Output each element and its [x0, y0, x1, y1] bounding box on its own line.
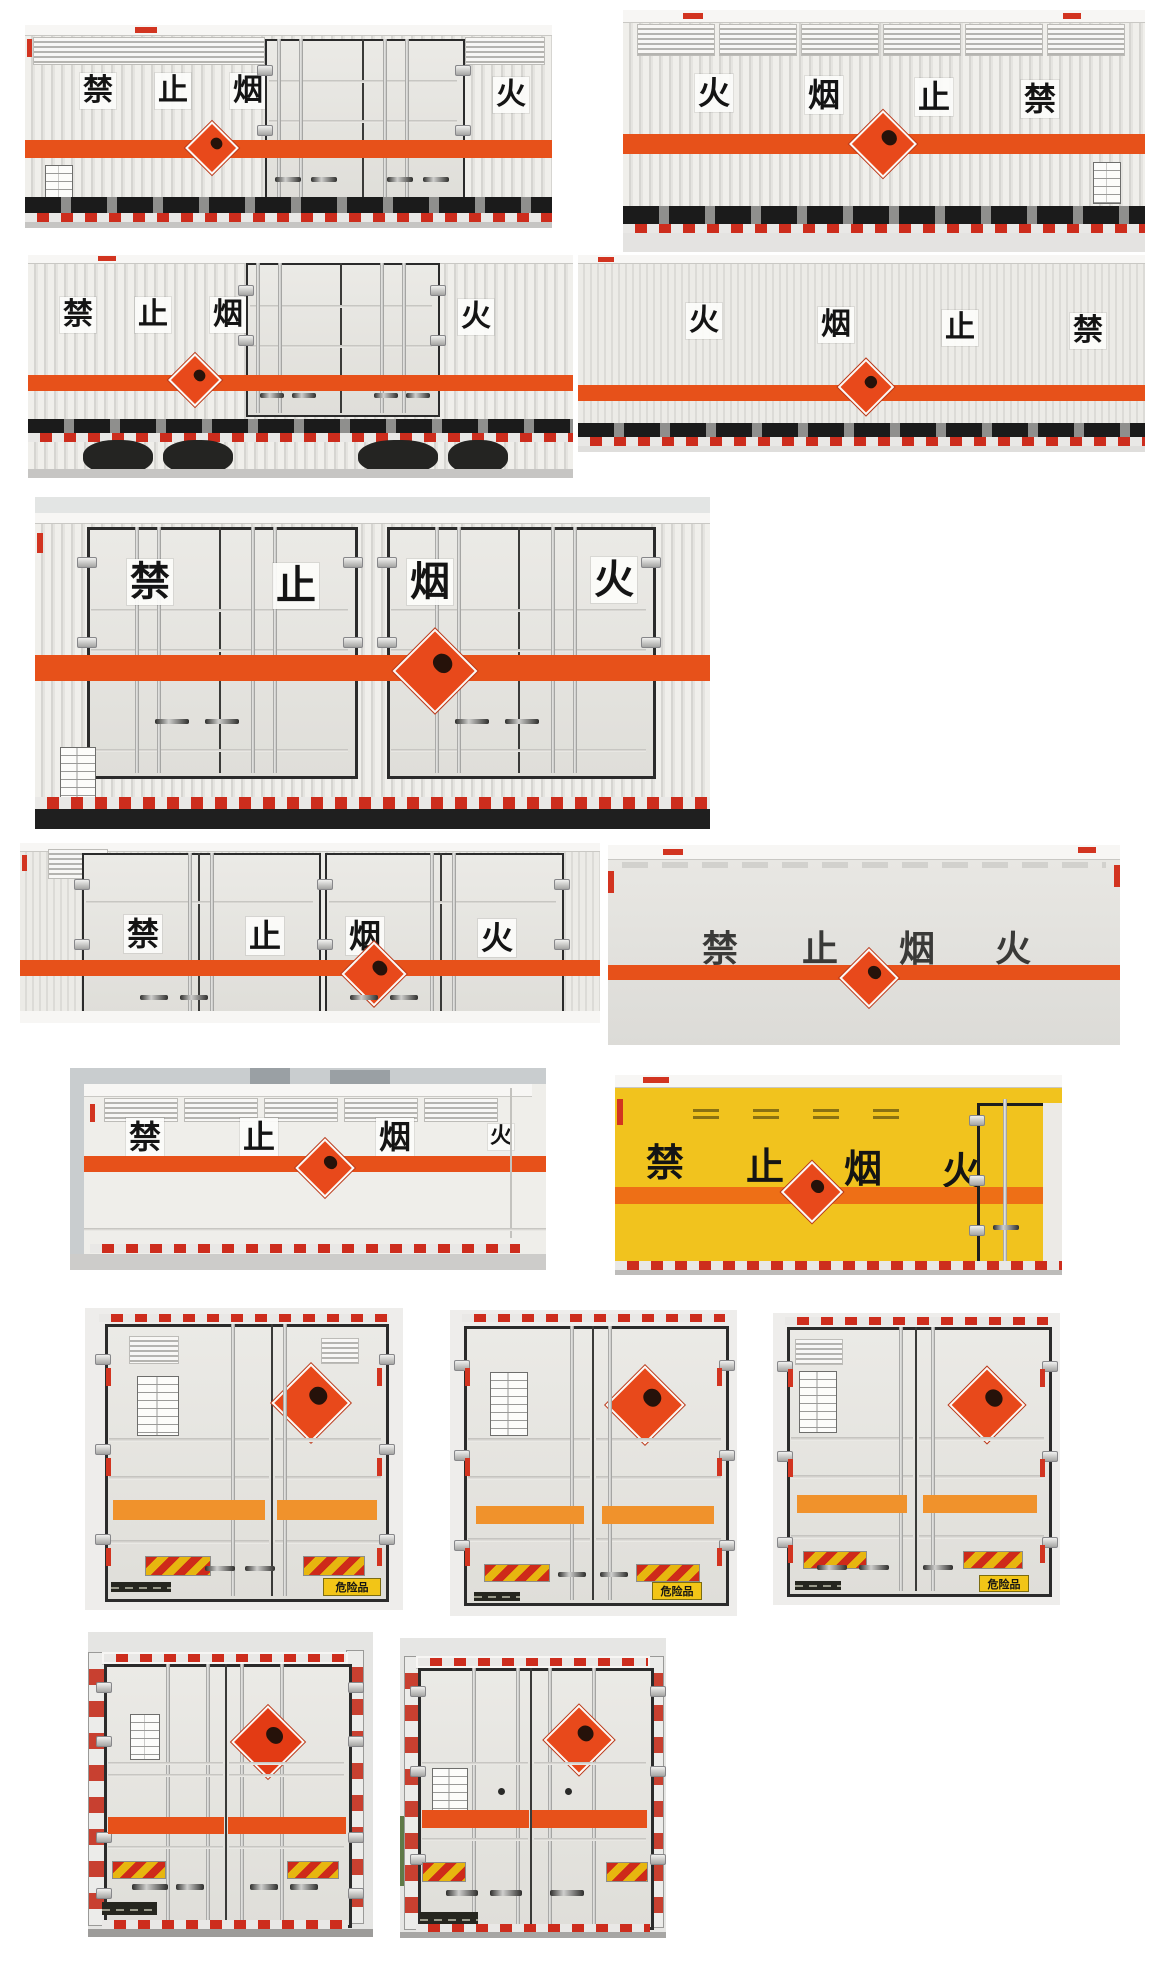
door-rib	[919, 1437, 1044, 1441]
no-fire-char: 禁	[643, 1141, 687, 1185]
red-marker	[27, 39, 32, 57]
door-latch	[423, 177, 449, 182]
door-rib	[534, 1838, 646, 1841]
door-lock-rod	[383, 39, 387, 199]
vent-louver	[1047, 24, 1125, 56]
hinge-tab	[95, 1534, 111, 1545]
door-rib	[534, 1762, 646, 1765]
flame-icon	[865, 963, 883, 981]
no-fire-char: 止	[942, 310, 978, 346]
door-latch	[250, 1884, 278, 1890]
door-split	[225, 1664, 227, 1922]
door-latch	[490, 1890, 522, 1896]
door-rib	[919, 1535, 1044, 1539]
photo-box-van-side-5: 禁 止 烟 火	[35, 497, 710, 829]
photo-box-van-side-2: 火 烟 止 禁	[623, 10, 1145, 252]
red-reflector	[465, 1368, 470, 1386]
reflective-strip	[25, 213, 552, 222]
dangerous-goods-text: 危险品	[661, 1583, 694, 1599]
red-marker	[37, 533, 43, 553]
door-lock-rod	[472, 1668, 476, 1924]
spec-label-plate	[130, 1714, 160, 1760]
door-latch	[558, 1572, 586, 1577]
door-lock-rod	[931, 1327, 935, 1591]
no-fire-char: 烟	[407, 559, 453, 605]
hinge-tab	[348, 1832, 364, 1843]
warning-stripe	[422, 1810, 529, 1828]
spec-label-plate	[1093, 162, 1121, 204]
no-fire-char: 禁	[1070, 313, 1106, 349]
no-fire-char: 止	[743, 1145, 787, 1189]
door-latch	[387, 177, 413, 182]
vent-louver	[33, 37, 265, 65]
photo-box-van-rear-13	[88, 1632, 373, 1937]
hinge-tab	[348, 1682, 364, 1693]
red-reflector	[717, 1458, 722, 1476]
red-reflector	[788, 1369, 793, 1387]
hinge-tab	[96, 1888, 112, 1899]
rear-door-frame	[977, 1103, 1047, 1269]
no-fire-char: 禁	[60, 297, 96, 333]
roof-rail	[35, 513, 710, 524]
spec-label-plate	[60, 747, 96, 801]
door-split	[198, 853, 200, 1011]
door-latch	[390, 995, 418, 1000]
ground	[623, 233, 1145, 252]
warning-stripe	[25, 140, 552, 158]
vent-louver	[321, 1338, 359, 1364]
vent-louver	[795, 1339, 843, 1365]
vent-slit	[813, 1109, 839, 1112]
no-fire-char: 火	[695, 74, 733, 112]
door-lock-rod	[570, 1326, 574, 1600]
box-side-post	[1043, 1103, 1062, 1263]
company-info-plate	[795, 1581, 841, 1590]
door-lock-rod	[283, 1324, 287, 1596]
door-rib	[391, 749, 646, 752]
door-rib	[791, 1535, 913, 1539]
door-lock-rod	[405, 39, 409, 199]
door-latch	[455, 719, 489, 724]
vent-louver	[883, 24, 961, 56]
hinge-tab	[641, 637, 661, 648]
flame-icon	[321, 1153, 339, 1171]
no-fire-char: 烟	[818, 307, 854, 343]
warning-stripe	[20, 960, 600, 976]
ground	[28, 469, 573, 478]
flame-icon	[192, 367, 208, 383]
door-lock-rod	[899, 1327, 903, 1591]
no-fire-char: 禁	[700, 930, 740, 970]
door-latch	[205, 1566, 235, 1571]
red-marker	[608, 871, 614, 893]
door-lock-rod	[1003, 1099, 1007, 1267]
red-reflector	[465, 1548, 470, 1566]
no-fire-char: 禁	[80, 73, 116, 109]
no-fire-char: 禁	[127, 559, 173, 605]
photo-box-van-side-6: 禁 止 烟 火	[20, 843, 600, 1023]
door-split	[440, 853, 442, 1011]
door-split	[530, 1668, 532, 1924]
hinge-tab	[96, 1736, 112, 1747]
no-fire-char: 禁	[124, 915, 162, 953]
door-rib	[275, 1540, 381, 1544]
door-latch	[205, 719, 239, 724]
door-latch	[245, 1566, 275, 1571]
top-marker-strip	[104, 1654, 346, 1662]
top-marker-strip	[785, 1317, 1048, 1325]
photo-box-van-rear-14	[400, 1638, 666, 1938]
hinge-tab	[410, 1686, 426, 1697]
door-split	[362, 39, 364, 199]
top-marker-strip	[99, 1314, 389, 1322]
warning-stripe	[476, 1506, 584, 1524]
hinge-tab	[96, 1682, 112, 1693]
hinge-tab	[95, 1354, 111, 1365]
photo-yellow-box-van-side-9: 禁 止 烟 火	[615, 1075, 1062, 1275]
hinge-tab	[317, 879, 333, 890]
photo-box-van-side-7: 禁 止 烟 火	[608, 845, 1120, 1045]
ground	[578, 446, 1145, 452]
red-marker	[663, 849, 683, 855]
red-marker	[683, 13, 703, 19]
door-rib	[269, 80, 457, 83]
vent-louver	[129, 1336, 179, 1364]
flammable-placard	[185, 121, 239, 175]
ground	[88, 1929, 373, 1937]
flame-icon	[640, 1385, 665, 1410]
flame-icon	[263, 1724, 286, 1747]
door-latch	[176, 1884, 204, 1890]
hinge-tab	[379, 1354, 395, 1365]
red-marker	[1063, 13, 1081, 19]
hinge-tab	[455, 65, 471, 76]
red-reflector	[1040, 1369, 1045, 1387]
reflective-strip	[35, 797, 710, 809]
spec-label-plate	[137, 1376, 179, 1436]
reflective-strip	[578, 437, 1145, 446]
door-rib	[596, 1438, 721, 1442]
door-lock-rod	[551, 527, 555, 773]
hinge-tab	[969, 1225, 985, 1236]
red-marker	[598, 257, 614, 262]
flame-icon	[862, 373, 879, 390]
underbody-skirt	[578, 423, 1145, 437]
no-fire-char: 止	[273, 563, 319, 609]
door-lock-rod	[430, 853, 434, 1011]
underbody-skirt	[25, 197, 552, 213]
spec-label-plate	[490, 1372, 528, 1436]
reflective-strip	[90, 1244, 520, 1253]
red-reflector	[1040, 1459, 1045, 1477]
dangerous-goods-plate: 危险品	[979, 1575, 1029, 1592]
roof-rail	[578, 255, 1145, 264]
vent-louver	[424, 1098, 498, 1122]
door-latch	[311, 177, 337, 182]
ground	[400, 1932, 666, 1938]
hinge-tab	[348, 1888, 364, 1899]
company-info-plate	[111, 1582, 171, 1592]
hinge-tab	[238, 335, 254, 346]
door-latch	[923, 1565, 953, 1570]
door-rib	[86, 901, 313, 904]
door-rib	[391, 609, 646, 612]
flame-icon	[574, 1722, 596, 1744]
door-lock-rod	[210, 853, 214, 1011]
door-latch	[275, 177, 301, 182]
door-latch	[550, 1890, 584, 1896]
door-rib	[422, 1762, 528, 1765]
ground	[615, 1270, 1062, 1275]
door-latch	[290, 1884, 318, 1890]
door-rib	[791, 1475, 913, 1479]
warning-stripe	[602, 1506, 714, 1524]
door-stop	[565, 1788, 572, 1795]
red-marker	[617, 1099, 623, 1125]
red-reflector	[788, 1545, 793, 1563]
red-marker	[22, 855, 27, 871]
no-fire-char: 烟	[805, 76, 843, 114]
flame-icon	[982, 1386, 1006, 1410]
flame-icon	[879, 127, 900, 148]
chevron-reflector	[422, 1862, 466, 1882]
reflective-strip	[615, 1261, 1062, 1270]
warning-stripe	[113, 1500, 265, 1520]
chevron-reflector	[303, 1556, 365, 1576]
no-fire-char: 禁	[126, 1118, 164, 1156]
door-lock-rod	[592, 1668, 596, 1924]
door-rib	[109, 1540, 269, 1544]
roof-rail	[615, 1075, 1062, 1088]
hinge-tab	[343, 637, 363, 648]
red-reflector	[106, 1548, 111, 1566]
hinge-tab	[317, 939, 333, 950]
no-fire-char: 烟	[210, 297, 246, 333]
hinge-tab	[650, 1766, 666, 1777]
chevron-reflector	[145, 1556, 211, 1576]
door-lock-rod	[240, 1664, 244, 1922]
reflective-strip	[416, 1924, 650, 1932]
roof-rivet-row	[622, 862, 1106, 868]
hinge-tab	[77, 557, 97, 568]
red-reflector	[377, 1368, 382, 1386]
door-lock-rod	[573, 527, 577, 773]
door-latch	[446, 1890, 478, 1896]
chevron-reflector	[484, 1564, 550, 1582]
door-rib	[91, 609, 348, 612]
flammable-placard	[849, 110, 917, 178]
door-rib	[919, 1475, 1044, 1479]
hinge-tab	[410, 1766, 426, 1777]
door-rib	[108, 1762, 223, 1765]
vent-slit	[813, 1116, 839, 1119]
hinge-tab	[554, 939, 570, 950]
chevron-reflector	[287, 1861, 339, 1879]
no-fire-char: 止	[135, 297, 171, 333]
photo-box-van-rear-11: 危险品	[450, 1310, 737, 1616]
door-lock-rod	[516, 1668, 520, 1924]
company-info-plate	[102, 1902, 157, 1915]
door-lock-rod	[548, 1668, 552, 1924]
vent-slit	[873, 1109, 899, 1112]
red-marker	[98, 256, 116, 261]
dangerous-goods-plate: 危险品	[652, 1582, 702, 1600]
bottom-rail	[20, 1011, 600, 1023]
no-fire-char: 火	[458, 299, 494, 335]
underbody	[35, 809, 710, 829]
vent-louver	[637, 24, 715, 56]
hinge-tab	[379, 1534, 395, 1545]
red-reflector	[377, 1458, 382, 1476]
hinge-tab	[257, 125, 273, 136]
roof-rail	[84, 1084, 532, 1097]
door-lock-rod	[608, 1326, 612, 1600]
door-latch	[260, 393, 284, 398]
door-lock-rod	[280, 1664, 284, 1922]
spec-label-plate	[799, 1371, 837, 1433]
door-rib	[229, 1846, 344, 1849]
door-lock-rod	[231, 1324, 235, 1596]
door-lock-rod	[452, 853, 456, 1011]
flame-icon	[306, 1383, 331, 1408]
door-rib	[275, 1438, 381, 1442]
warning-stripe	[277, 1500, 377, 1520]
underbody-skirt	[28, 419, 573, 433]
no-fire-char: 止	[246, 917, 284, 955]
chevron-reflector	[112, 1861, 166, 1879]
door-stop	[498, 1788, 505, 1795]
red-reflector	[717, 1548, 722, 1566]
flammable-placard	[838, 359, 895, 416]
door-lock-rod	[251, 527, 255, 773]
vent-slit	[693, 1116, 719, 1119]
door-rib	[229, 1774, 344, 1777]
vent-louver	[719, 24, 797, 56]
door-latch	[180, 995, 208, 1000]
no-fire-char: 止	[800, 930, 840, 970]
photo-box-van-side-8: 禁 止 烟 火	[70, 1068, 546, 1270]
door-rib	[422, 1838, 528, 1841]
top-marker-strip	[462, 1314, 725, 1322]
door-split	[592, 1326, 594, 1600]
door-rib	[329, 901, 556, 904]
hinge-tab	[348, 1736, 364, 1747]
door-rib	[91, 749, 348, 752]
door-rib	[596, 1476, 721, 1480]
door-latch	[140, 995, 168, 1000]
door-rib	[109, 1476, 269, 1480]
flammable-placard	[781, 1161, 843, 1223]
red-reflector	[465, 1458, 470, 1476]
hinge-tab	[430, 285, 446, 296]
red-reflector	[106, 1368, 111, 1386]
underbody-skirt	[623, 206, 1145, 224]
door-latch	[350, 995, 378, 1000]
reflective-strip	[623, 224, 1145, 233]
box-rear-edge	[510, 1088, 512, 1238]
hinge-tab	[455, 125, 471, 136]
vent-slit	[753, 1109, 779, 1112]
photo-box-van-rear-12: 危险品	[773, 1313, 1060, 1605]
vent-louver	[465, 37, 545, 65]
door-latch	[993, 1225, 1019, 1230]
door-latch	[817, 1565, 847, 1570]
red-reflector	[788, 1459, 793, 1477]
red-marker	[135, 27, 157, 33]
no-fire-char: 火	[478, 919, 516, 957]
door-rib	[109, 1438, 269, 1442]
red-reflector	[106, 1458, 111, 1476]
chevron-reflector	[606, 1862, 648, 1882]
door-latch	[406, 393, 430, 398]
door-rib	[269, 120, 457, 123]
red-reflector	[1040, 1545, 1045, 1563]
hinge-tab	[74, 939, 90, 950]
door-latch	[505, 719, 539, 724]
door-split	[915, 1327, 917, 1591]
hinge-tab	[641, 557, 661, 568]
vent-louver	[965, 24, 1043, 56]
flame-icon	[370, 958, 390, 978]
photo-box-van-side-3: 禁 止 烟 火	[28, 255, 573, 478]
red-reflector	[717, 1368, 722, 1386]
door-lock-rod	[277, 39, 281, 199]
door-rib	[275, 1476, 381, 1480]
no-fire-char: 火	[686, 303, 722, 339]
no-fire-char: 烟	[897, 930, 937, 970]
hinge-tab	[95, 1444, 111, 1455]
ground	[25, 222, 552, 228]
vent-slit	[753, 1116, 779, 1119]
hinge-tab	[650, 1854, 666, 1865]
hinge-tab	[430, 335, 446, 346]
door-rib	[108, 1846, 223, 1849]
door-rib	[596, 1538, 721, 1542]
door-latch	[600, 1572, 628, 1577]
hinge-tab	[554, 879, 570, 890]
flammable-placard	[168, 353, 222, 407]
chevron-reflector	[636, 1564, 700, 1582]
warning-stripe	[923, 1495, 1037, 1513]
door-rib	[791, 1437, 913, 1441]
roof-rail	[608, 845, 1120, 860]
door-lock-rod	[457, 527, 461, 773]
warning-stripe	[532, 1810, 647, 1828]
hinge-tab	[377, 557, 397, 568]
door-latch	[292, 393, 316, 398]
door-latch	[155, 719, 189, 724]
warning-stripe	[797, 1495, 907, 1513]
dangerous-goods-text: 危险品	[336, 1579, 369, 1595]
reflective-strip	[102, 1920, 348, 1929]
hinge-tab	[238, 285, 254, 296]
flame-icon	[429, 650, 456, 677]
spec-label-plate	[432, 1768, 468, 1816]
dangerous-goods-text: 危险品	[988, 1576, 1021, 1592]
door-latch	[859, 1565, 889, 1570]
photo-box-van-rear-10: 危险品	[85, 1308, 403, 1610]
door-rib	[108, 1774, 223, 1777]
side-door-frame	[82, 853, 321, 1015]
no-fire-char: 火	[993, 930, 1033, 970]
door-rib	[91, 649, 348, 652]
vent-slit	[873, 1116, 899, 1119]
top-marker-strip	[418, 1658, 648, 1666]
no-fire-char: 止	[240, 1118, 278, 1156]
vent-slit	[693, 1109, 719, 1112]
warning-stripe	[228, 1817, 346, 1834]
warning-stripe	[35, 655, 710, 681]
